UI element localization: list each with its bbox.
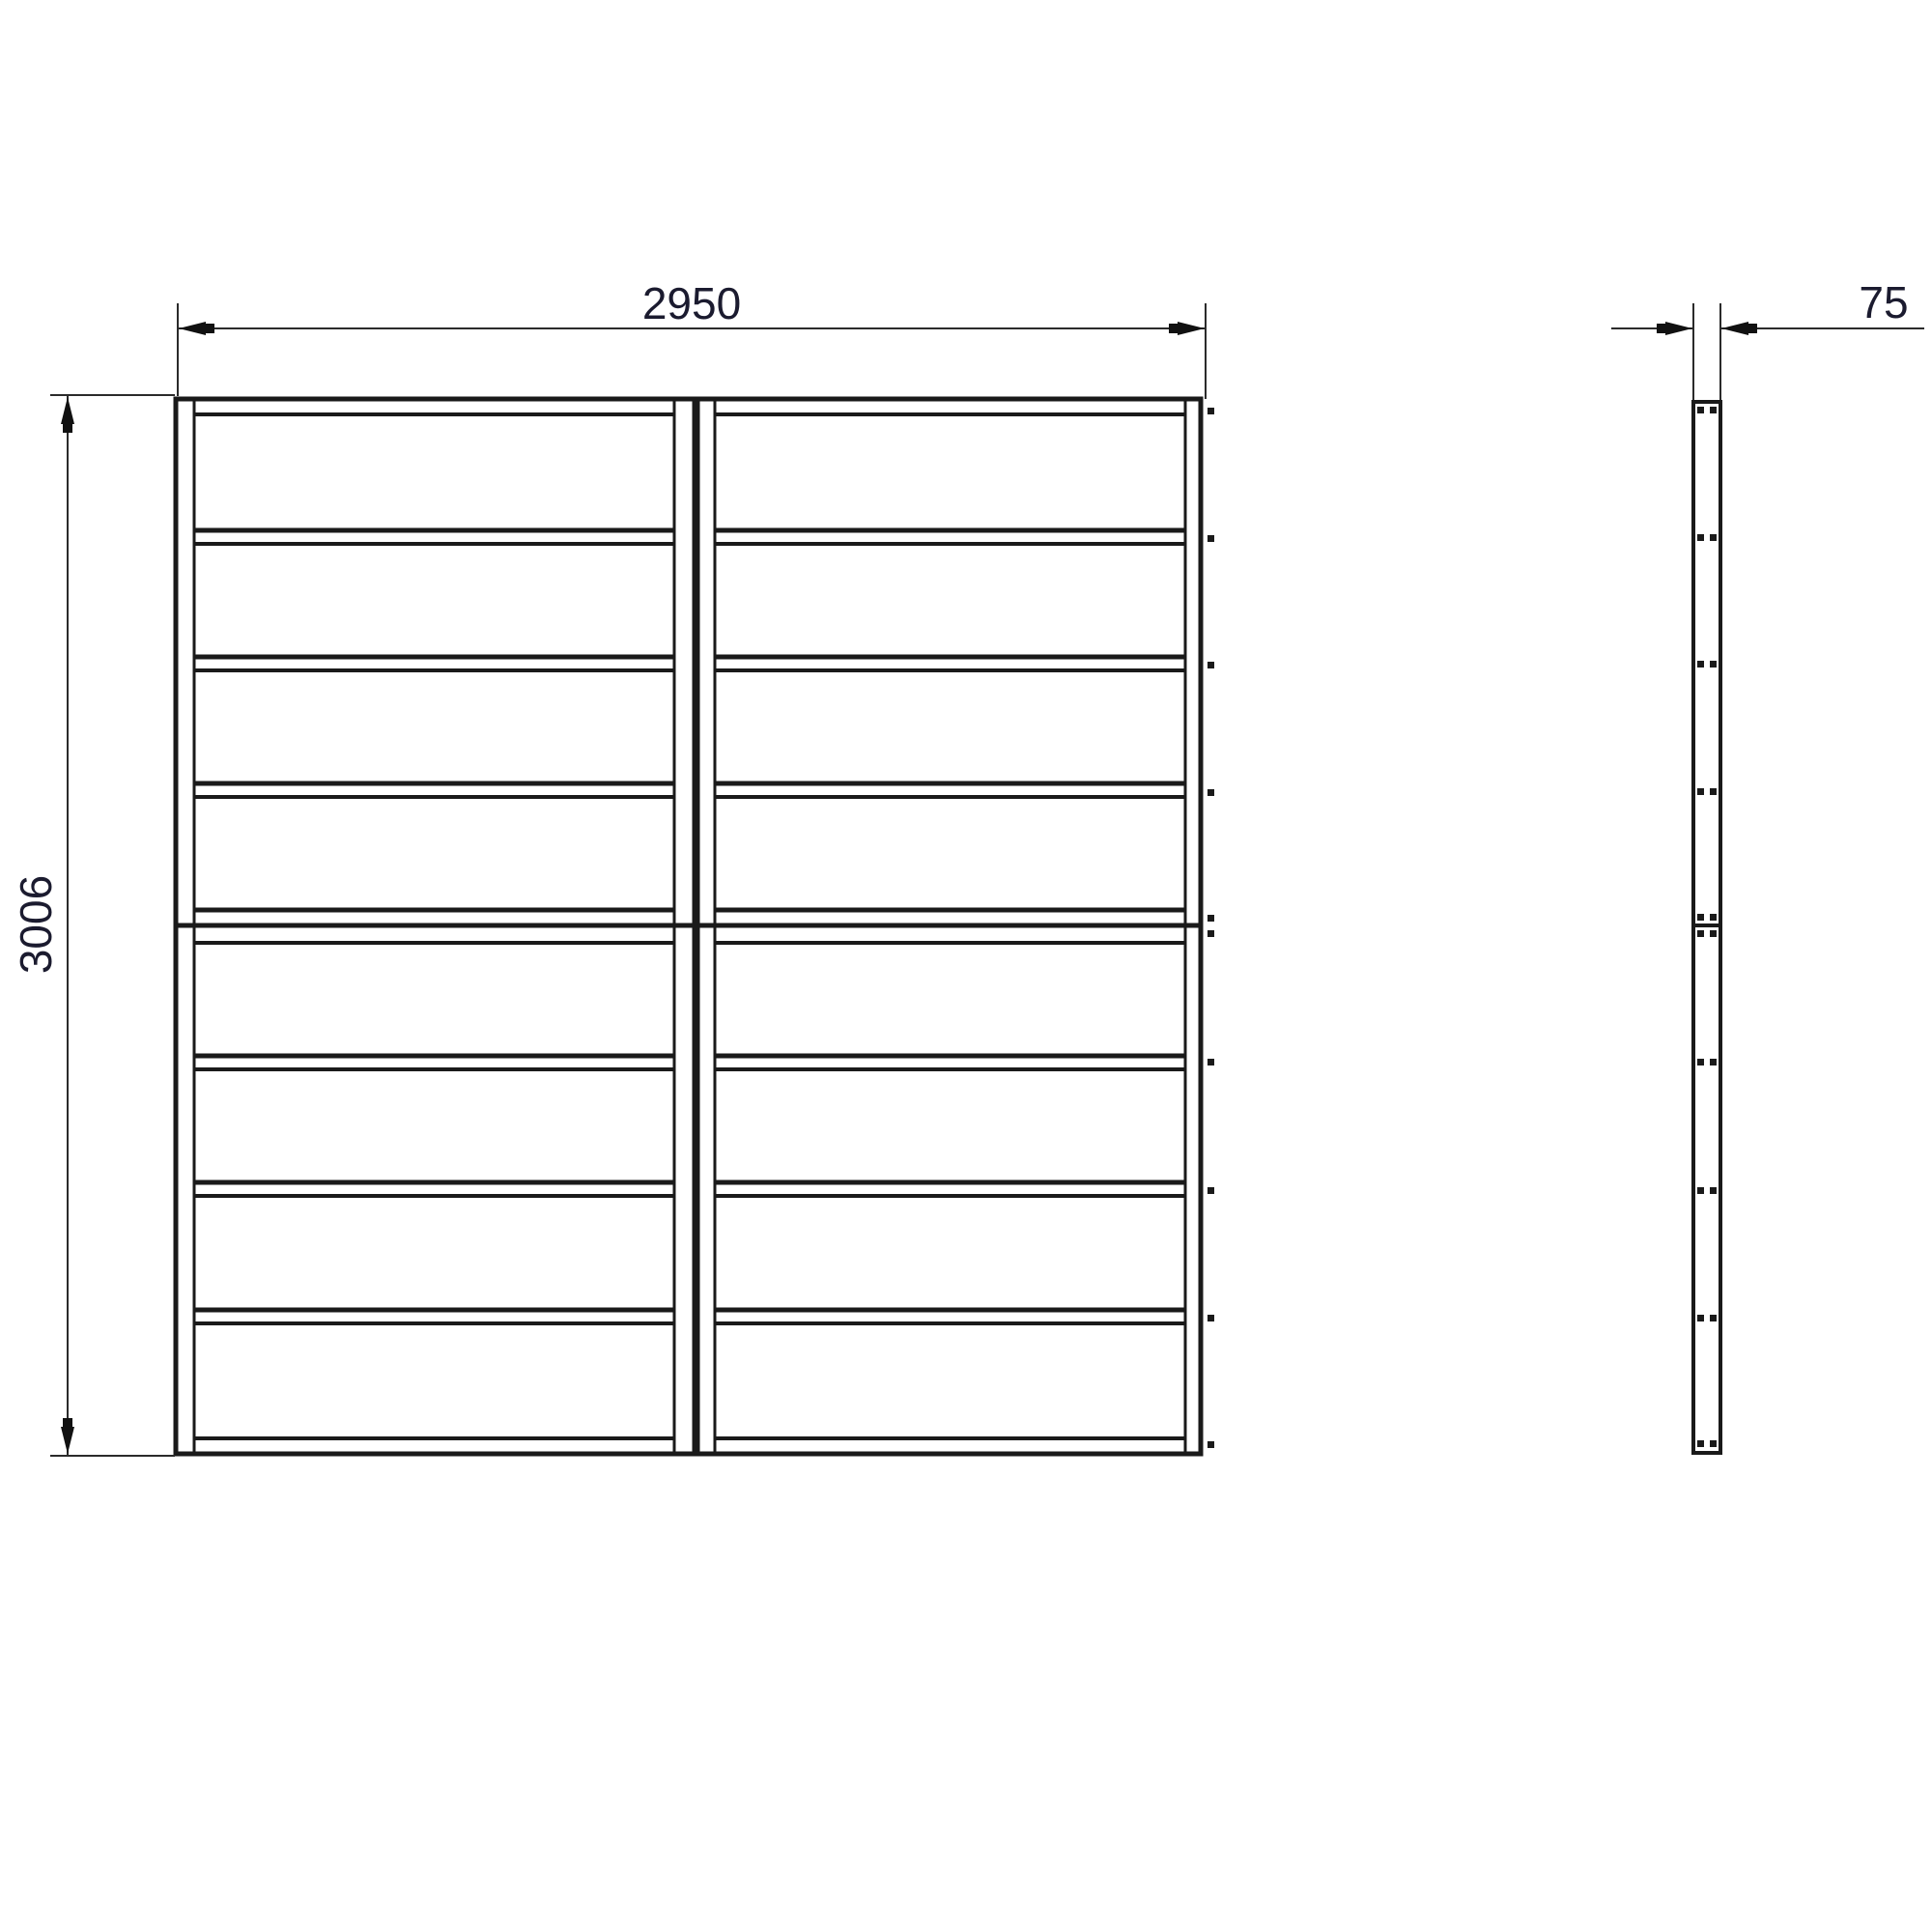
screw-mark bbox=[1207, 1059, 1214, 1065]
front-left-panel bbox=[176, 399, 695, 1454]
arrow-tail bbox=[1169, 324, 1178, 333]
screw-mark bbox=[1710, 1187, 1717, 1194]
dimension-width: 2950 bbox=[178, 278, 1206, 399]
width-dimension-label: 2950 bbox=[642, 278, 741, 328]
arrow-tail bbox=[63, 1418, 72, 1427]
screw-mark bbox=[1710, 1059, 1717, 1065]
arrow-down bbox=[61, 1427, 74, 1454]
front-right-panel bbox=[697, 399, 1201, 1454]
screw-mark bbox=[1207, 930, 1214, 937]
screw-mark bbox=[1697, 788, 1704, 795]
dimension-thickness: 75 bbox=[1611, 277, 1924, 400]
screw-mark bbox=[1697, 1315, 1704, 1321]
screw-mark bbox=[1697, 914, 1704, 921]
screw-mark bbox=[1697, 1059, 1704, 1065]
dimension-height: 3006 bbox=[11, 395, 175, 1456]
arrow-tail bbox=[206, 324, 214, 333]
arrow-left-pointing bbox=[1721, 322, 1748, 335]
screw-mark bbox=[1697, 534, 1704, 541]
side-view bbox=[1693, 402, 1720, 1453]
screw-mark bbox=[1207, 408, 1214, 414]
edge-screw-marks bbox=[1207, 408, 1214, 1448]
screw-mark bbox=[1697, 407, 1704, 413]
arrow-up bbox=[61, 397, 74, 424]
screw-mark bbox=[1710, 407, 1717, 413]
arrow-right-pointing bbox=[1665, 322, 1692, 335]
screw-mark bbox=[1207, 789, 1214, 796]
screw-mark bbox=[1710, 788, 1717, 795]
screw-mark bbox=[1710, 1315, 1717, 1321]
screw-mark bbox=[1710, 534, 1717, 541]
screw-mark bbox=[1710, 930, 1717, 937]
panel-drawing: 2950 3006 75 bbox=[0, 0, 1932, 1932]
screw-mark bbox=[1697, 661, 1704, 668]
screw-mark bbox=[1207, 1441, 1214, 1448]
height-dimension-label: 3006 bbox=[11, 875, 61, 974]
screw-mark bbox=[1710, 1440, 1717, 1447]
thickness-dimension-label: 75 bbox=[1859, 277, 1908, 327]
dimension-arrows bbox=[1657, 322, 1757, 335]
arrow-right bbox=[1178, 322, 1205, 335]
arrow-left bbox=[179, 322, 206, 335]
screw-mark bbox=[1207, 1315, 1214, 1321]
screw-mark bbox=[1207, 662, 1214, 668]
screw-mark bbox=[1207, 1187, 1214, 1194]
screw-mark bbox=[1710, 914, 1717, 921]
screw-mark bbox=[1697, 930, 1704, 937]
front-view bbox=[176, 399, 1214, 1454]
drawing-canvas: 2950 3006 75 bbox=[0, 0, 1932, 1932]
arrow-tail bbox=[63, 424, 72, 433]
screw-mark bbox=[1710, 661, 1717, 668]
screw-mark bbox=[1207, 535, 1214, 542]
arrow-tail bbox=[1748, 324, 1757, 333]
screw-mark bbox=[1207, 915, 1214, 922]
screw-mark bbox=[1697, 1187, 1704, 1194]
screw-mark bbox=[1697, 1440, 1704, 1447]
arrow-tail bbox=[1657, 324, 1665, 333]
